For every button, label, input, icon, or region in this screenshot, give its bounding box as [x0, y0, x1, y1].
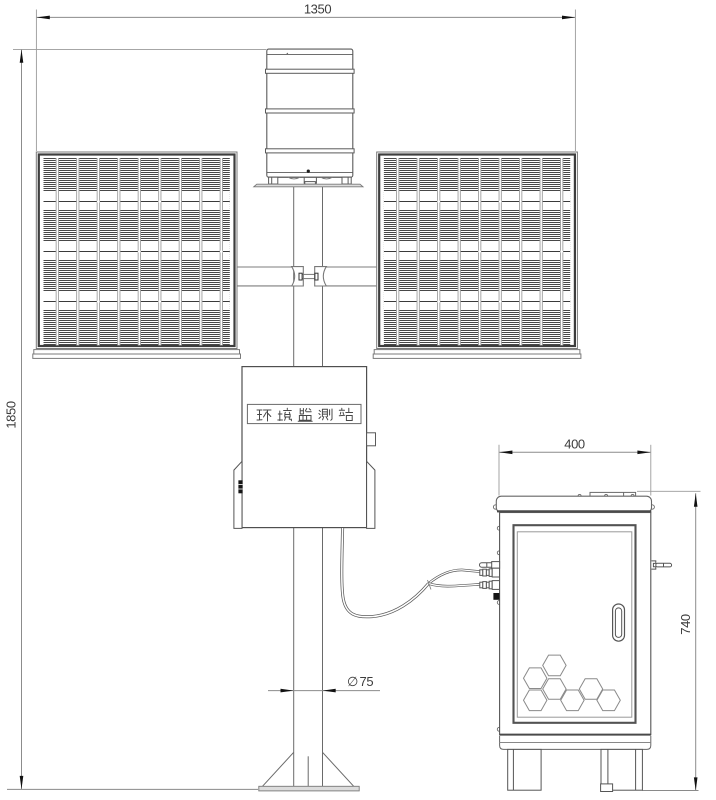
svg-text:740: 740: [678, 614, 693, 635]
svg-text:∅: ∅: [347, 674, 358, 689]
svg-text:1850: 1850: [4, 401, 19, 428]
svg-text:75: 75: [360, 674, 374, 689]
svg-text:1350: 1350: [304, 2, 331, 17]
svg-text:400: 400: [564, 437, 585, 452]
